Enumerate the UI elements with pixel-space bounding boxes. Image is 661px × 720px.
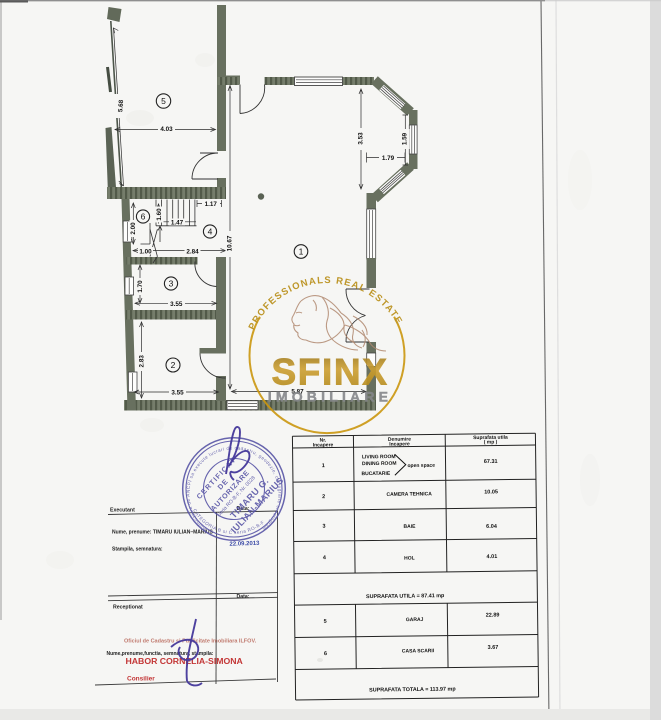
svg-text:1.17: 1.17: [205, 201, 218, 208]
svg-text:( mp ): ( mp ): [484, 439, 498, 445]
svg-text:1.70: 1.70: [137, 280, 144, 293]
svg-text:5.68: 5.68: [117, 99, 125, 112]
svg-text:1.79: 1.79: [382, 155, 395, 162]
svg-text:SUPRAFATA TOTALA = 113.97: SUPRAFATA TOTALA = 113.97 mp: [369, 687, 456, 694]
svg-text:GARAJ: GARAJ: [406, 617, 424, 623]
svg-text:Consilier: Consilier: [127, 676, 155, 683]
svg-text:5: 5: [324, 619, 327, 625]
svg-text:BAIE: BAIE: [404, 524, 417, 530]
svg-text:6: 6: [324, 651, 327, 657]
svg-text:Data:: Data:: [237, 594, 250, 600]
svg-text:IMOBILIARE: IMOBILIARE: [268, 389, 392, 405]
svg-text:1.59: 1.59: [401, 132, 408, 145]
svg-text:2.00: 2.00: [130, 222, 137, 235]
svg-text:5: 5: [161, 96, 166, 106]
svg-text:3: 3: [169, 279, 174, 289]
svg-text:Incapere: Incapere: [389, 441, 410, 447]
svg-text:1.00: 1.00: [139, 248, 152, 255]
svg-text:open space: open space: [407, 463, 435, 469]
svg-text:SUPRAFATA UTILA = 87.41 mp: SUPRAFATA UTILA = 87.41 mp: [366, 593, 445, 600]
svg-text:2: 2: [322, 494, 325, 500]
svg-text:3.67: 3.67: [488, 645, 499, 651]
svg-text:LIVING ROOM: LIVING ROOM: [362, 454, 396, 460]
svg-text:Incapere: Incapere: [313, 442, 334, 448]
svg-text:4: 4: [208, 227, 213, 237]
svg-text:BUCATARIE: BUCATARIE: [361, 471, 390, 477]
svg-text:Stampila, semnatura:: Stampila, semnatura:: [112, 547, 163, 553]
svg-text:1: 1: [322, 463, 325, 469]
svg-text:CAMERA TEHNICA: CAMERA TEHNICA: [386, 491, 432, 498]
svg-text:HOL: HOL: [404, 556, 415, 562]
svg-text:2.83: 2.83: [138, 355, 145, 368]
svg-text:10.67: 10.67: [226, 235, 233, 251]
svg-text:3.55: 3.55: [170, 301, 183, 308]
svg-text:SFINX: SFINX: [272, 352, 389, 393]
svg-text:22.09.2013: 22.09.2013: [229, 541, 260, 548]
svg-text:Nume, prenume: TIMARU IULIA: Nume, prenume: TIMARU IULIAN–MARIUS: [112, 530, 214, 536]
svg-text:2: 2: [171, 360, 176, 370]
svg-text:4.01: 4.01: [487, 554, 498, 560]
svg-text:CASA SCARII: CASA SCARII: [402, 648, 435, 654]
svg-text:1.47: 1.47: [171, 220, 184, 227]
svg-text:Receptionat: Receptionat: [113, 605, 143, 611]
svg-text:22.89: 22.89: [486, 612, 500, 618]
svg-text:1: 1: [299, 247, 304, 257]
svg-text:10.05: 10.05: [484, 489, 498, 495]
svg-text:6: 6: [141, 212, 146, 222]
svg-text:6.04: 6.04: [486, 524, 498, 530]
svg-text:3.53: 3.53: [358, 132, 365, 145]
svg-text:2.84: 2.84: [186, 248, 199, 255]
svg-text:3: 3: [322, 524, 325, 530]
svg-text:3.55: 3.55: [171, 390, 184, 397]
svg-text:DINING ROOM: DINING ROOM: [362, 461, 397, 467]
svg-text:HABOR CORNELIA-SIMONA: HABOR CORNELIA-SIMONA: [126, 656, 244, 666]
svg-text:1.60: 1.60: [156, 208, 163, 221]
svg-text:4.03: 4.03: [160, 126, 173, 133]
svg-text:67.31: 67.31: [484, 459, 498, 465]
svg-text:Executant: Executant: [110, 508, 135, 514]
